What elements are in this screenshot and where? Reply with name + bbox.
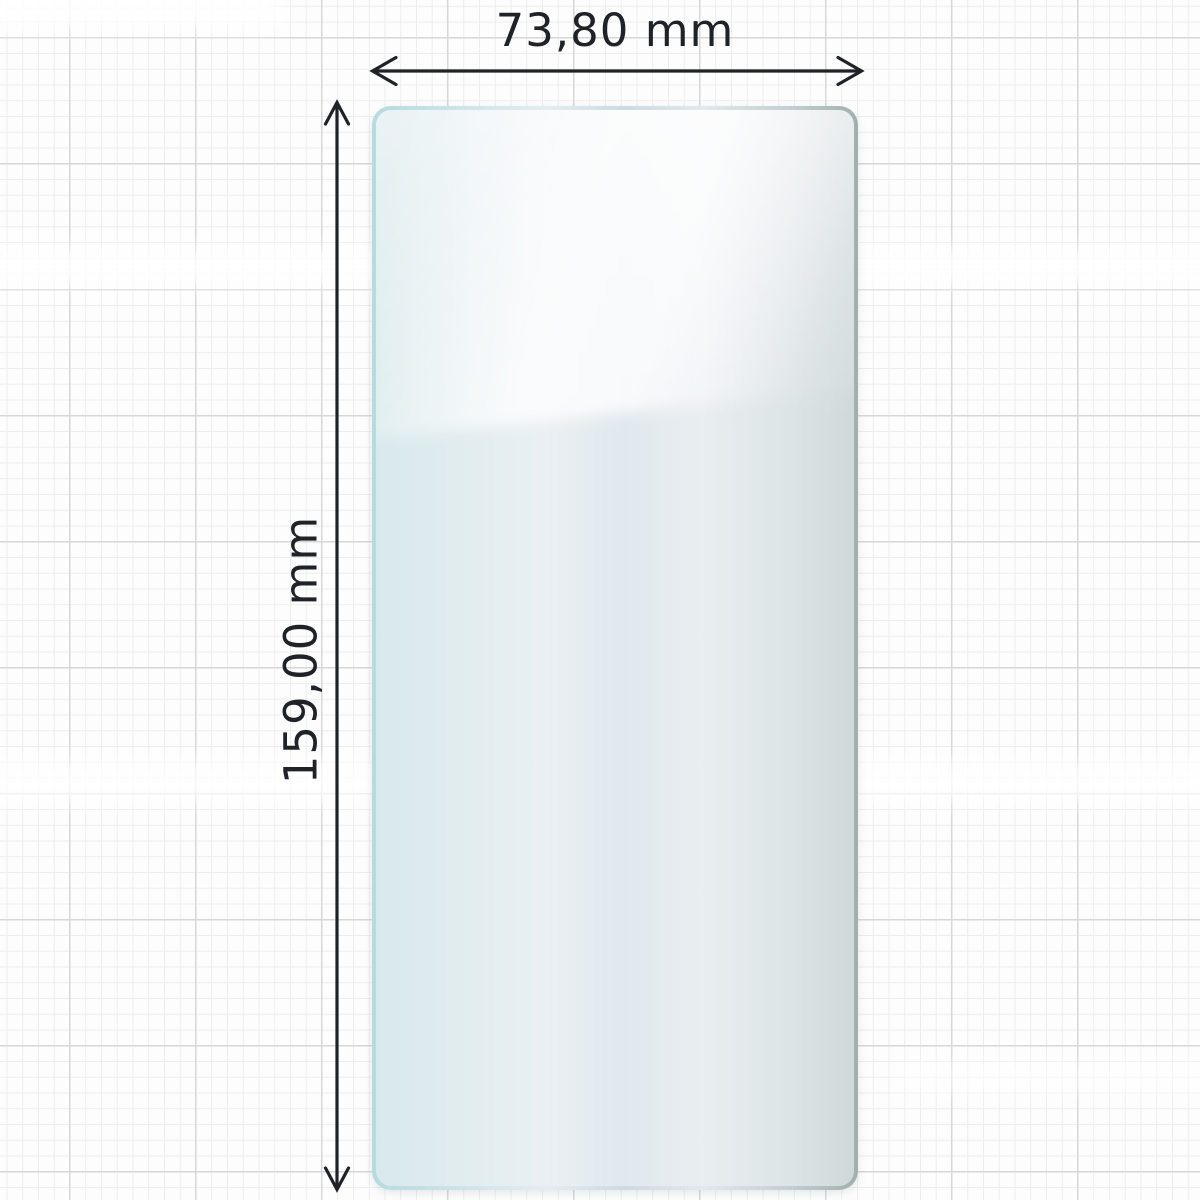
glass-diagonal-reflection <box>376 110 854 442</box>
glass-surface <box>376 110 854 1186</box>
paper-sheen-band <box>0 0 280 30</box>
paper-sheen-band <box>900 1062 1200 1092</box>
height-dimension-label: 159,00 mm <box>275 516 328 784</box>
width-dimension-label: 73,80 mm <box>372 4 858 57</box>
screen-protector-glass <box>372 106 858 1190</box>
